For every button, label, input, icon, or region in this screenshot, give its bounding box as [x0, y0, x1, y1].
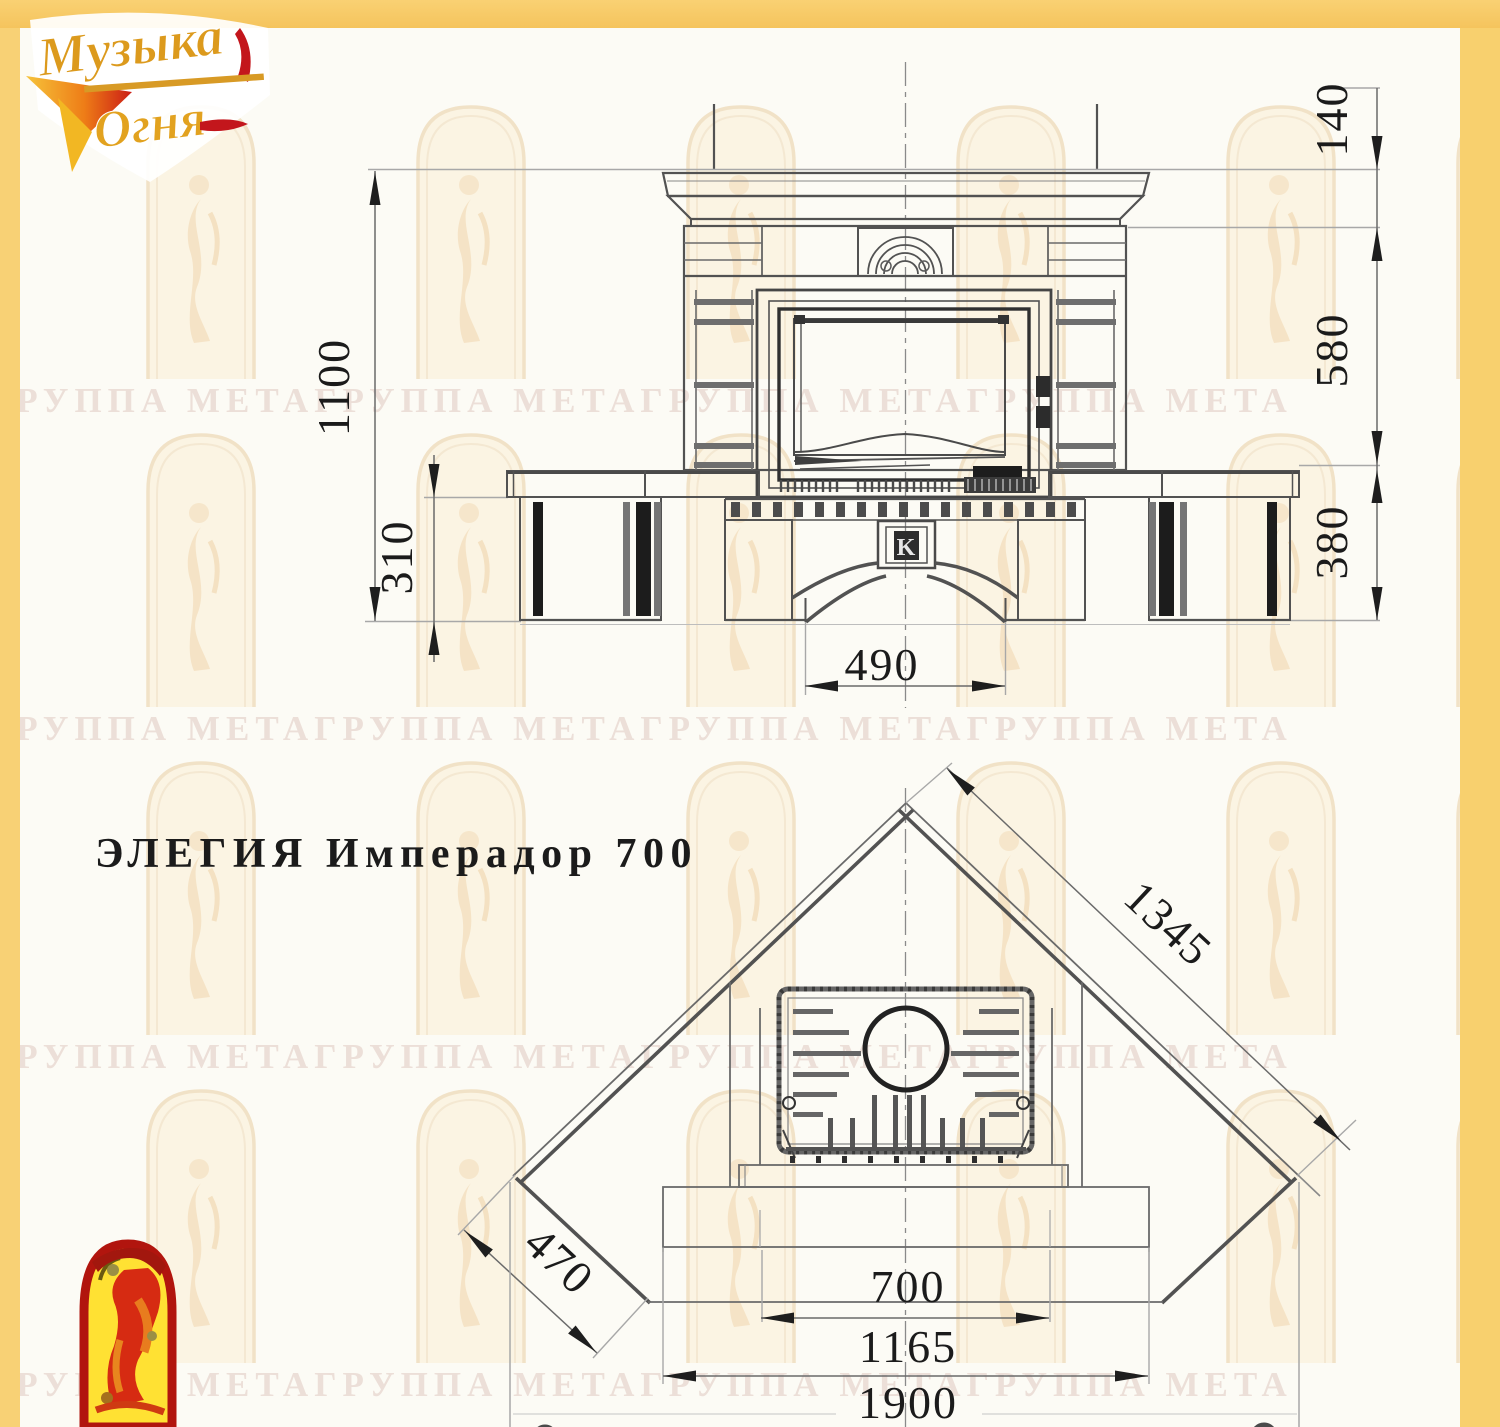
- svg-text:490: 490: [845, 639, 920, 690]
- svg-text:1900: 1900: [858, 1377, 958, 1427]
- svg-text:K: K: [897, 535, 916, 561]
- svg-text:700: 700: [871, 1261, 946, 1312]
- svg-text:380: 380: [1306, 505, 1357, 580]
- svg-text:580: 580: [1306, 313, 1357, 388]
- svg-text:470: 470: [515, 1216, 605, 1304]
- svg-text:310: 310: [371, 520, 422, 595]
- svg-text:1100: 1100: [308, 338, 359, 436]
- svg-text:140: 140: [1306, 82, 1357, 157]
- svg-text:1165: 1165: [859, 1321, 957, 1372]
- svg-text:1345: 1345: [1115, 871, 1223, 976]
- svg-text:ЭЛЕГИЯ Имперадор 700: ЭЛЕГИЯ Имперадор 700: [95, 831, 698, 877]
